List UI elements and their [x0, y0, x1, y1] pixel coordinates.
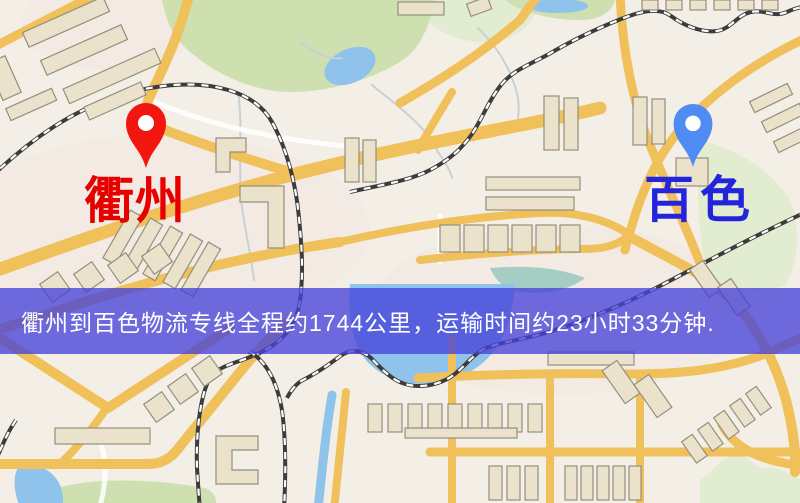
map-screenshot: 衢州 百色 衢州到百色物流专线全程约1744公里，运输时间约23小时33分钟.: [0, 0, 800, 503]
map-background: [0, 0, 800, 503]
origin-city-label: 衢州: [84, 176, 186, 226]
route-info-text: 衢州到百色物流专线全程约1744公里，运输时间约23小时33分钟.: [0, 304, 715, 338]
route-info-banner: 衢州到百色物流专线全程约1744公里，运输时间约23小时33分钟.: [0, 288, 800, 354]
destination-city-label: 百色: [644, 175, 756, 225]
